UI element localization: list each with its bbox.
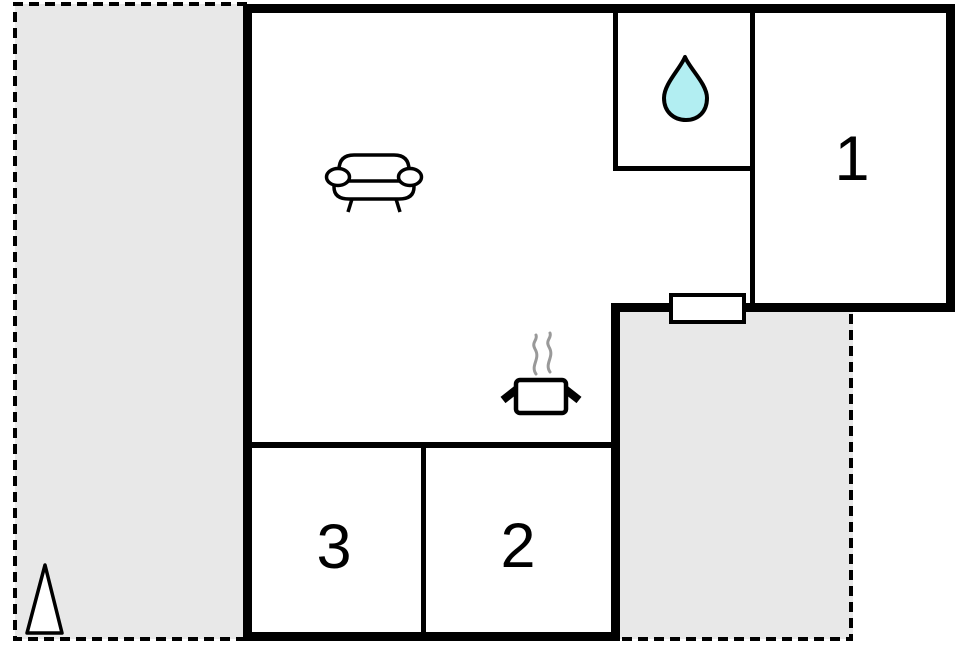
wall-bedroom-divider [421, 448, 426, 632]
wall-bathroom-left [613, 13, 618, 171]
wall-bedrooms-top [252, 442, 611, 448]
bedroom-1-label: 1 [834, 124, 869, 194]
sofa-armrest-right [399, 169, 422, 186]
terrace-door [671, 295, 744, 322]
left-terrace-area [15, 4, 247, 639]
wall-mid-horizontal [611, 303, 955, 312]
sofa-armrest-left [327, 169, 350, 186]
wall-left [243, 4, 252, 641]
wall-bathroom-right [750, 13, 755, 303]
wall-right-outer [946, 4, 955, 312]
wall-bottom [243, 632, 620, 641]
cooking-pot-icon [503, 380, 579, 413]
bedroom-3-label: 3 [316, 512, 351, 582]
right-terrace [615, 307, 853, 639]
left-terrace [15, 4, 247, 639]
floor-plan: 1 2 3 [0, 0, 955, 652]
pot-body [516, 380, 566, 413]
wall-bathroom-bottom [613, 166, 755, 171]
wall-top [243, 4, 955, 13]
wall-living-room-right [611, 303, 620, 641]
right-terrace-area [615, 307, 853, 639]
floor-plan-page: 1 2 3 [0, 0, 955, 652]
bedroom-2-label: 2 [500, 511, 535, 581]
